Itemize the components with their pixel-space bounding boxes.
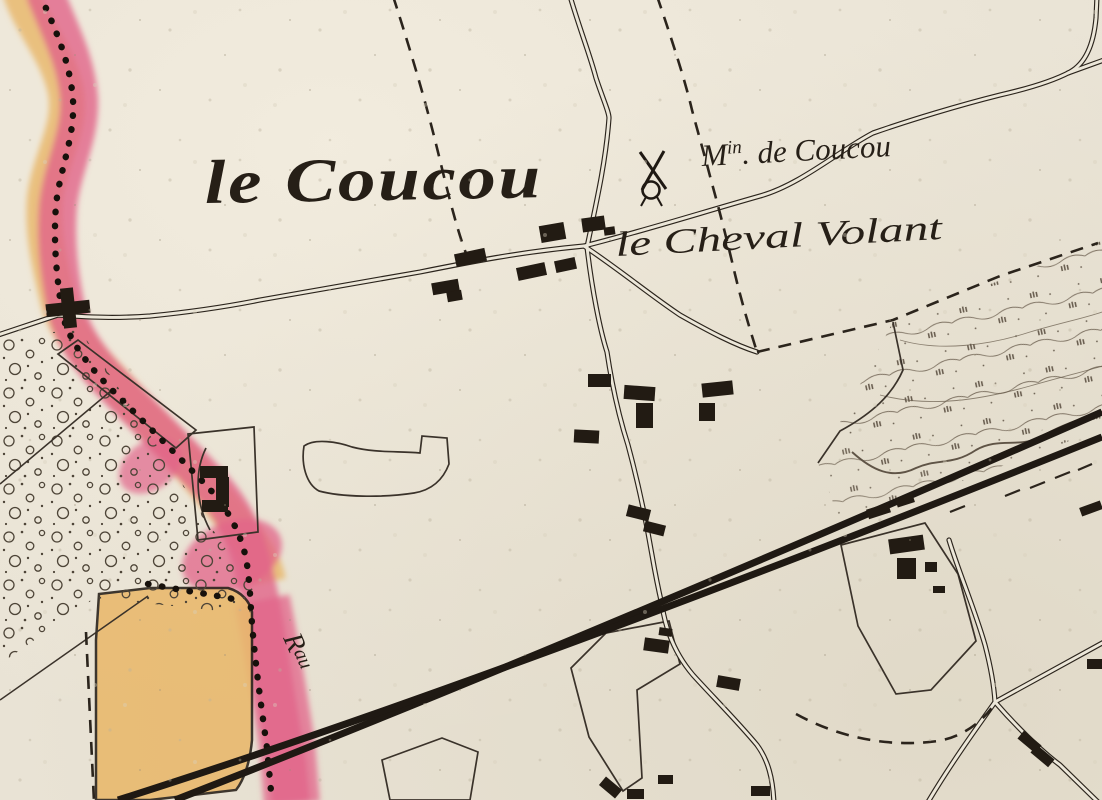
paper-noise-overlay xyxy=(0,0,1102,800)
map-svg: le Coucou Min. de Coucou le Cheval Volan… xyxy=(0,0,1102,800)
map-canvas: le Coucou Min. de Coucou le Cheval Volan… xyxy=(0,0,1102,800)
